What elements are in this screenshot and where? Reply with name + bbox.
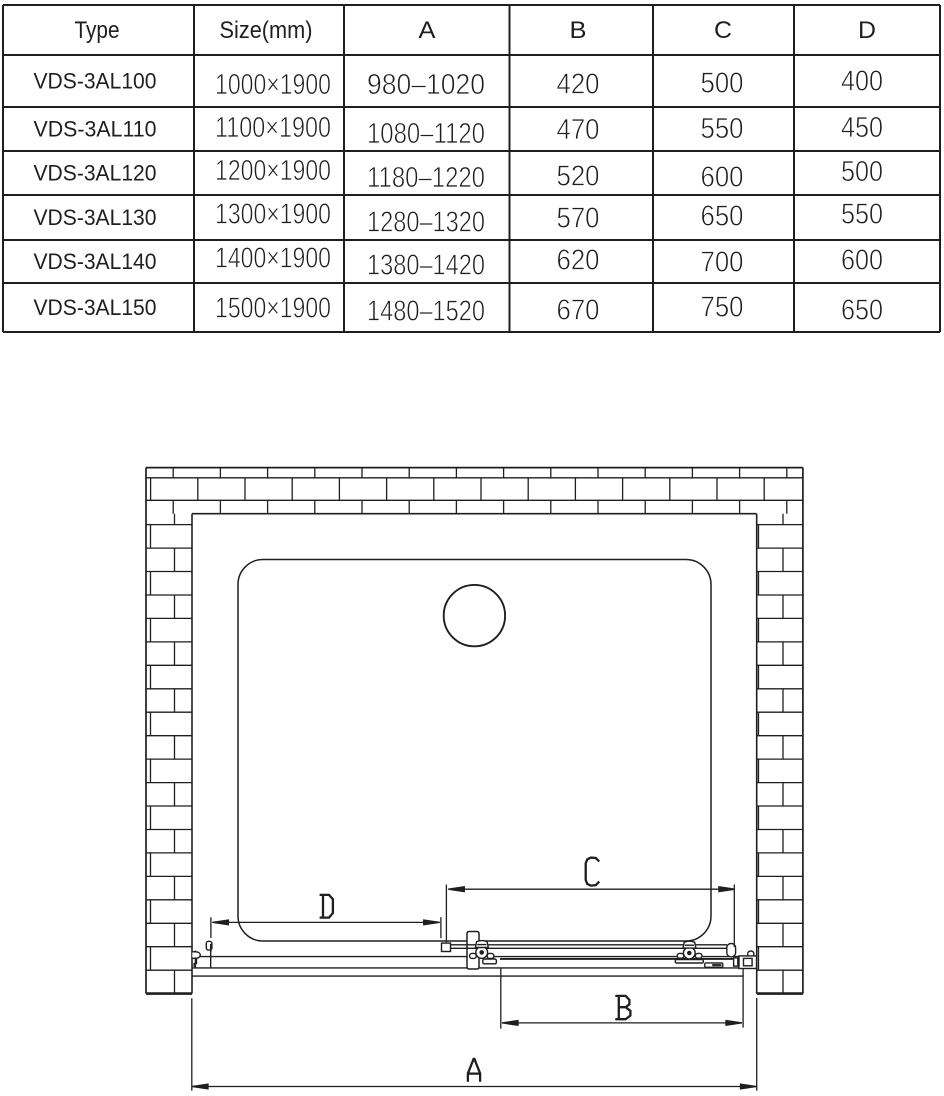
svg-text:A: A bbox=[419, 17, 436, 44]
svg-text:520: 520 bbox=[557, 161, 600, 193]
svg-text:1480–1520: 1480–1520 bbox=[367, 296, 485, 328]
svg-text:500: 500 bbox=[701, 68, 744, 100]
svg-text:600: 600 bbox=[701, 161, 744, 193]
svg-text:1400×1900: 1400×1900 bbox=[215, 243, 331, 275]
svg-text:1500×1900: 1500×1900 bbox=[215, 293, 331, 325]
svg-text:D: D bbox=[858, 17, 876, 44]
svg-text:1180–1220: 1180–1220 bbox=[367, 162, 485, 194]
svg-text:650: 650 bbox=[841, 295, 883, 327]
svg-text:470: 470 bbox=[557, 114, 600, 146]
svg-text:1080–1120: 1080–1120 bbox=[367, 118, 485, 150]
svg-text:VDS-3AL110: VDS-3AL110 bbox=[34, 117, 157, 142]
svg-text:VDS-3AL130: VDS-3AL130 bbox=[34, 205, 157, 230]
svg-text:VDS-3AL140: VDS-3AL140 bbox=[34, 249, 157, 274]
svg-text:Size(mm): Size(mm) bbox=[220, 17, 313, 44]
svg-text:450: 450 bbox=[841, 112, 883, 144]
svg-text:1300×1900: 1300×1900 bbox=[215, 199, 331, 231]
svg-text:1000×1900: 1000×1900 bbox=[215, 69, 331, 101]
svg-text:1100×1900: 1100×1900 bbox=[215, 112, 331, 144]
svg-text:700: 700 bbox=[701, 247, 744, 279]
svg-text:570: 570 bbox=[557, 203, 600, 235]
svg-text:B: B bbox=[570, 17, 587, 44]
svg-text:Type: Type bbox=[75, 17, 120, 44]
svg-text:C: C bbox=[714, 17, 732, 44]
svg-text:1280–1320: 1280–1320 bbox=[367, 207, 485, 239]
svg-text:VDS-3AL150: VDS-3AL150 bbox=[34, 295, 157, 320]
svg-text:550: 550 bbox=[841, 199, 883, 231]
svg-text:500: 500 bbox=[841, 156, 883, 188]
svg-text:980–1020: 980–1020 bbox=[367, 69, 485, 101]
svg-text:670: 670 bbox=[557, 295, 600, 327]
svg-text:400: 400 bbox=[841, 66, 883, 98]
svg-text:420: 420 bbox=[557, 69, 600, 101]
svg-text:750: 750 bbox=[701, 292, 744, 324]
svg-text:VDS-3AL100: VDS-3AL100 bbox=[34, 69, 157, 94]
svg-text:1380–1420: 1380–1420 bbox=[367, 250, 485, 282]
svg-text:600: 600 bbox=[841, 245, 883, 277]
svg-text:1200×1900: 1200×1900 bbox=[215, 155, 331, 187]
svg-text:550: 550 bbox=[701, 113, 744, 145]
svg-text:620: 620 bbox=[557, 245, 600, 277]
svg-text:650: 650 bbox=[701, 201, 744, 233]
svg-text:VDS-3AL120: VDS-3AL120 bbox=[34, 161, 157, 186]
